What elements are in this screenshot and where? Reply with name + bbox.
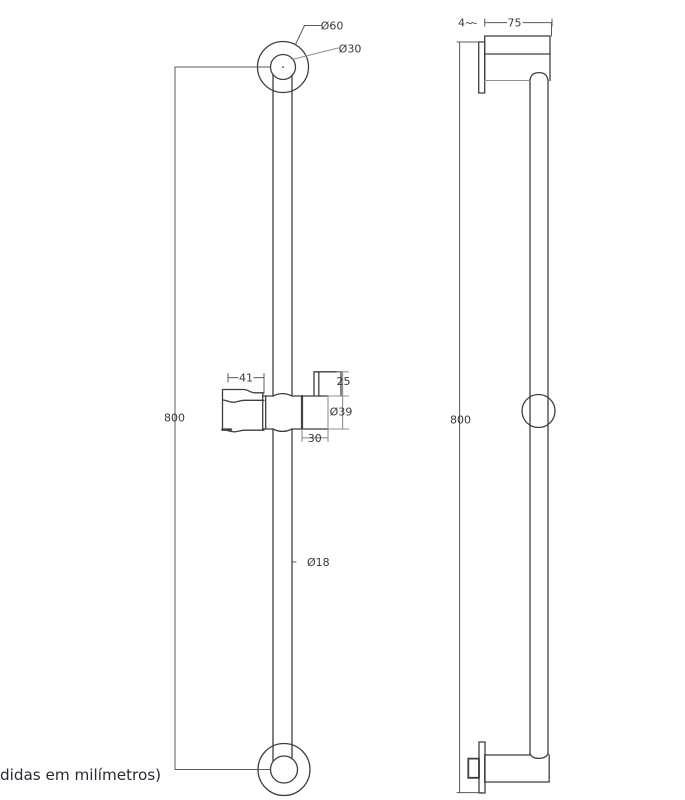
dim-label-flange-inner-diameter: Ø30: [339, 42, 362, 55]
top-flange-housing: [485, 36, 550, 81]
outer-diameter-leader: [296, 26, 321, 45]
bottom-flange-inner-circle: [271, 756, 298, 783]
slider-left-double-edge: [263, 393, 266, 429]
dim-label-holder-length: 41: [239, 371, 253, 384]
side-view: 4 75 800: [450, 17, 555, 793]
side-object-lines: [468, 36, 555, 793]
slider-knob-side: [522, 395, 555, 428]
anchor-screw-block: [468, 759, 479, 778]
dim-label-flange-depth: 75: [508, 17, 522, 30]
dim-label-slider-width: 30: [308, 432, 322, 445]
technical-drawing: Ø60 Ø30 800 41 25 Ø39 30 Ø18: [0, 0, 685, 800]
bottom-flange-housing: [485, 755, 550, 782]
bar-break-arcs: [273, 394, 292, 432]
inner-diameter-leader: [292, 48, 338, 60]
dim-4-leader-squiggle: [467, 22, 477, 23]
bar-bottom-cap: [530, 754, 548, 759]
dim-label-knob-height: 25: [337, 375, 351, 388]
slide-bar-side: [530, 80, 548, 755]
side-dimension-labels: 4 75 800: [450, 17, 522, 427]
top-flange-center-mark: [282, 66, 284, 68]
holder-bracket-break-line: [223, 400, 265, 402]
front-dimension-labels: Ø60 Ø30 800 41 25 Ø39 30 Ø18: [164, 20, 361, 570]
dim-label-flange-outer-diameter: Ø60: [321, 20, 344, 33]
side-dimension-lines: [457, 19, 552, 793]
bar-top-dome: [530, 73, 548, 81]
holder-bracket-outline: [223, 390, 265, 431]
slider-body-edges: [263, 396, 328, 429]
front-object-lines: [222, 42, 341, 796]
dim-label-bar-diameter: Ø18: [307, 556, 330, 569]
dim-label-overall-height-front: 800: [164, 412, 185, 425]
drawing-canvas: Ø60 Ø30 800 41 25 Ø39 30 Ø18: [0, 0, 685, 800]
units-note: didas em milímetros): [0, 766, 161, 784]
slide-bar-front: [273, 75, 292, 761]
dim-label-overall-height-side: 800: [450, 414, 471, 427]
dim-label-wall-plate-thickness: 4: [458, 17, 465, 30]
front-dimension-lines: [175, 26, 321, 770]
top-wall-plate: [479, 42, 485, 93]
front-view: Ø60 Ø30 800 41 25 Ø39 30 Ø18: [164, 20, 361, 796]
dim-label-slider-diameter: Ø39: [330, 406, 353, 419]
